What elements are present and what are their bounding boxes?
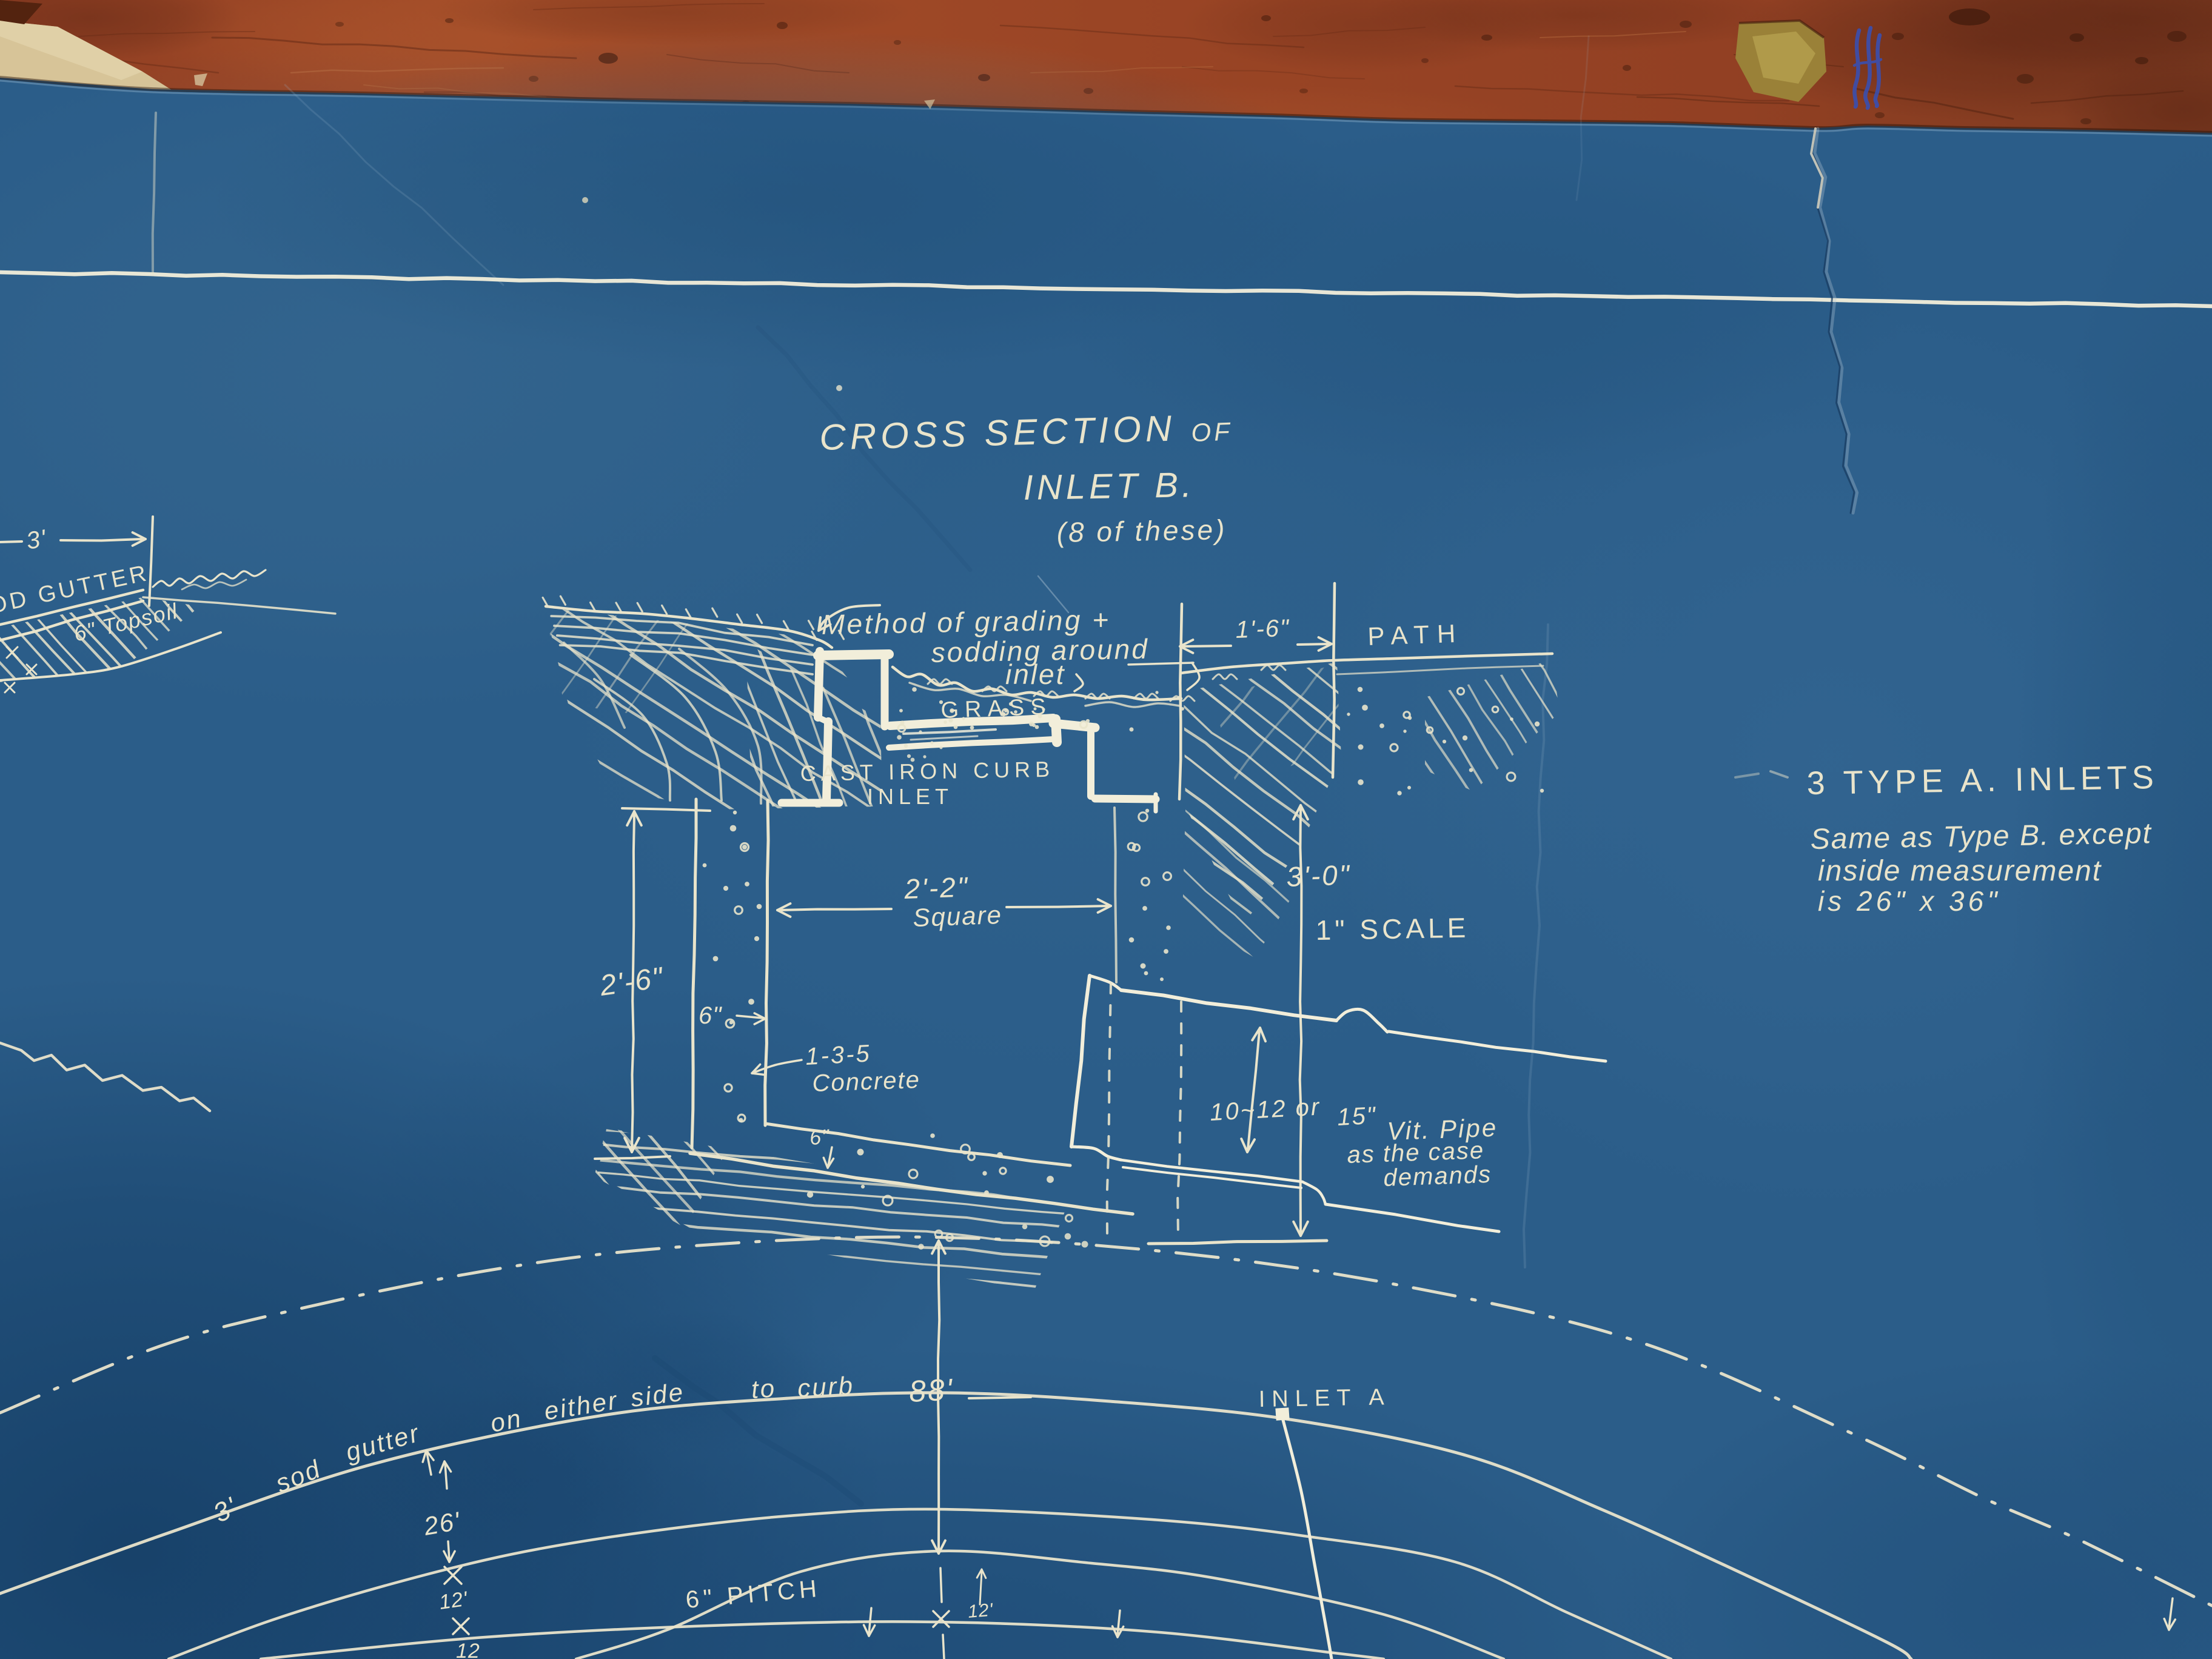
svg-text:INLET A: INLET A bbox=[1258, 1384, 1391, 1412]
svg-text:PATH: PATH bbox=[1367, 619, 1464, 651]
svg-text:6": 6" bbox=[699, 1002, 722, 1029]
svg-text:INLET: INLET bbox=[867, 784, 953, 809]
svg-text:1" SCALE: 1" SCALE bbox=[1315, 912, 1469, 946]
svg-text:inlet: inlet bbox=[1005, 659, 1065, 690]
svg-text:1-3-5: 1-3-5 bbox=[805, 1040, 872, 1070]
svg-text:to: to bbox=[750, 1373, 777, 1404]
svg-text:12': 12' bbox=[967, 1600, 994, 1622]
svg-text:Concrete: Concrete bbox=[812, 1067, 921, 1097]
svg-text:3 TYPE A. INLETS: 3 TYPE A. INLETS bbox=[1806, 759, 2159, 802]
svg-text:6": 6" bbox=[809, 1125, 831, 1150]
svg-text:is 26" x 36": is 26" x 36" bbox=[1818, 885, 2001, 917]
svg-text:CAST IRON CURB: CAST IRON CURB bbox=[800, 757, 1054, 786]
svg-text:curb: curb bbox=[797, 1371, 855, 1403]
svg-text:12: 12 bbox=[456, 1640, 480, 1659]
svg-text:12': 12' bbox=[438, 1587, 470, 1614]
svg-text:3'-0": 3'-0" bbox=[1286, 859, 1352, 893]
svg-text:1'-6": 1'-6" bbox=[1235, 615, 1290, 643]
svg-text:inside measurement: inside measurement bbox=[1818, 855, 2102, 887]
svg-text:Same as Type B. except: Same as Type B. except bbox=[1810, 817, 2152, 856]
svg-text:2'-2": 2'-2" bbox=[903, 871, 970, 905]
svg-text:88': 88' bbox=[908, 1372, 955, 1409]
svg-text:OF: OF bbox=[1191, 417, 1233, 447]
svg-text:on: on bbox=[488, 1404, 525, 1438]
svg-text:INLET B.: INLET B. bbox=[1023, 465, 1195, 508]
svg-text:(8 of these): (8 of these) bbox=[1056, 514, 1227, 548]
svg-text:Square: Square bbox=[913, 900, 1003, 932]
svg-text:demands: demands bbox=[1383, 1161, 1492, 1191]
svg-text:15": 15" bbox=[1336, 1102, 1377, 1131]
